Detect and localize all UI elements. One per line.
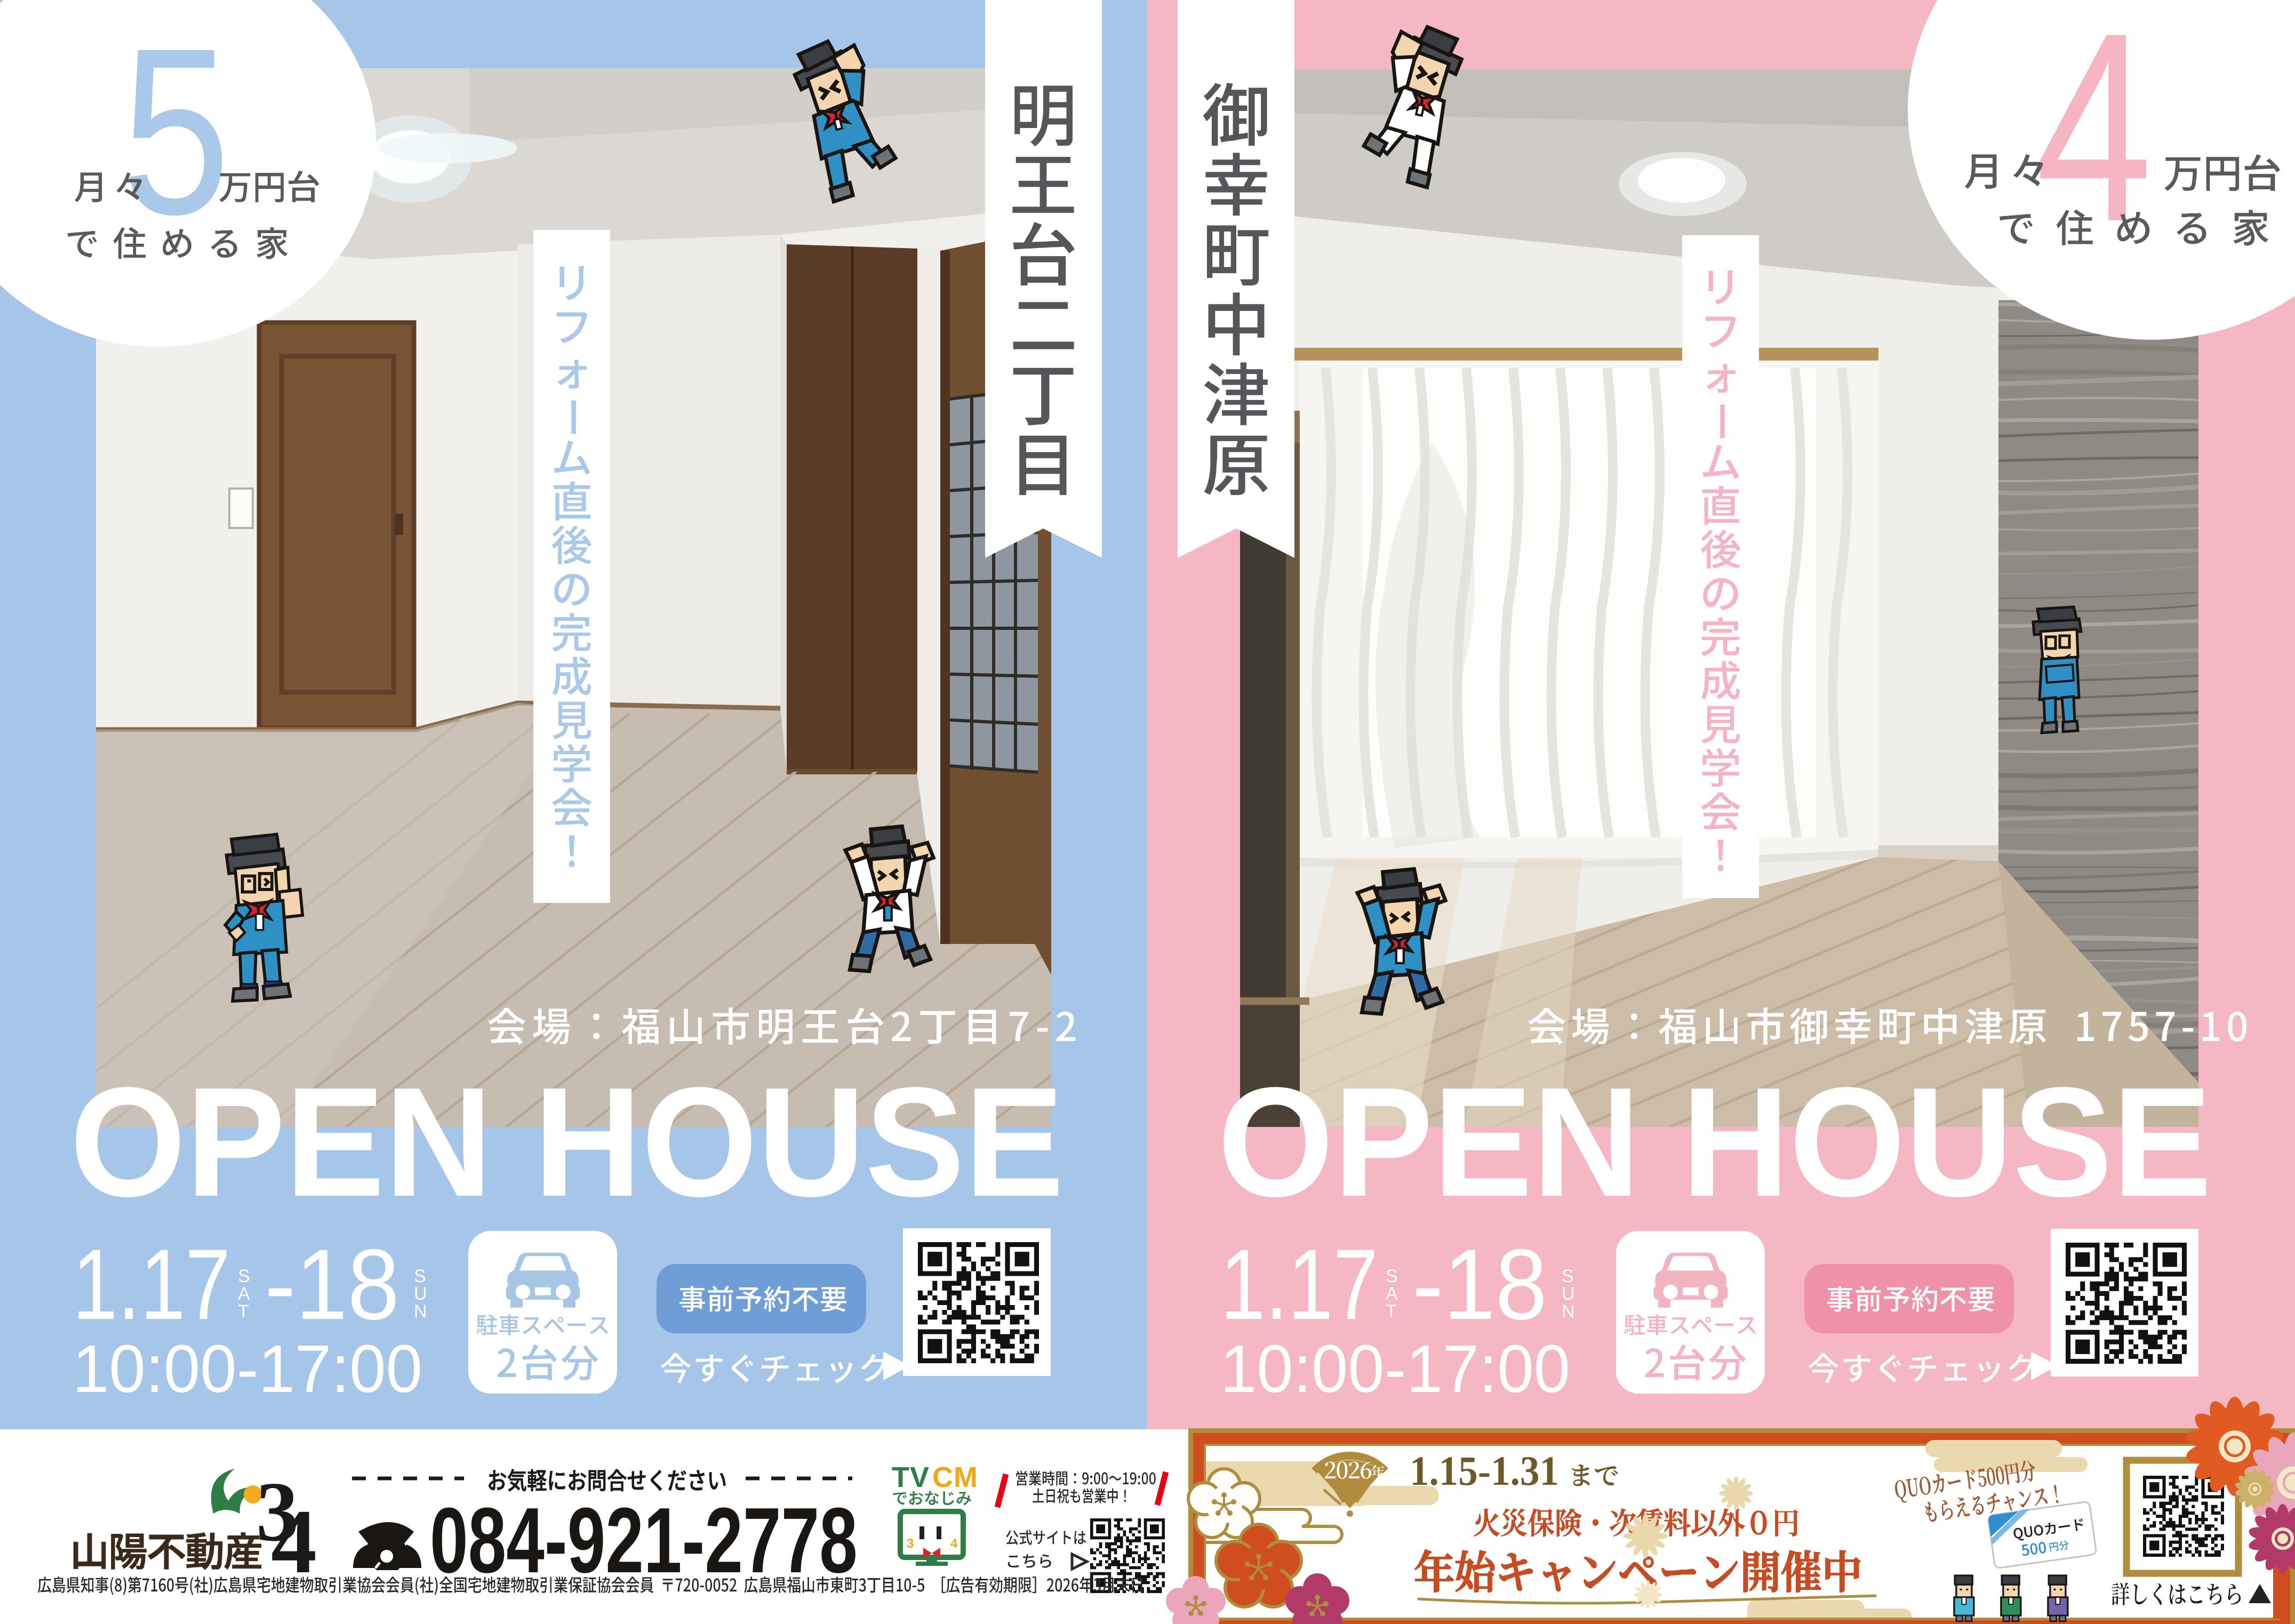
svg-text:TV: TV [892, 1461, 930, 1493]
svg-text:4: 4 [2035, 0, 2152, 277]
svg-text:N: N [414, 1301, 427, 1322]
svg-text:10:00-17:00: 10:00-17:00 [73, 1331, 422, 1406]
svg-text:T: T [238, 1301, 249, 1322]
svg-text:T: T [1386, 1301, 1397, 1322]
svg-text:3: 3 [907, 1537, 914, 1551]
svg-text:5: 5 [122, 0, 230, 264]
svg-text:4: 4 [950, 1537, 958, 1551]
svg-text:OPEN HOUSE: OPEN HOUSE [70, 1055, 1064, 1229]
svg-text:10:00-17:00: 10:00-17:00 [1220, 1331, 1570, 1406]
svg-text:-18: -18 [1412, 1228, 1547, 1340]
svg-text:1.17: 1.17 [73, 1228, 230, 1340]
svg-text:-18: -18 [265, 1228, 399, 1340]
svg-text:CM: CM [932, 1461, 978, 1493]
svg-text:N: N [1562, 1301, 1575, 1322]
svg-text:OPEN HOUSE: OPEN HOUSE [1218, 1055, 2212, 1229]
svg-text:1.17: 1.17 [1220, 1228, 1378, 1340]
svg-text:1.15-1.31: 1.15-1.31 [1410, 1447, 1559, 1494]
svg-text:084-921-2778: 084-921-2778 [430, 1489, 858, 1592]
